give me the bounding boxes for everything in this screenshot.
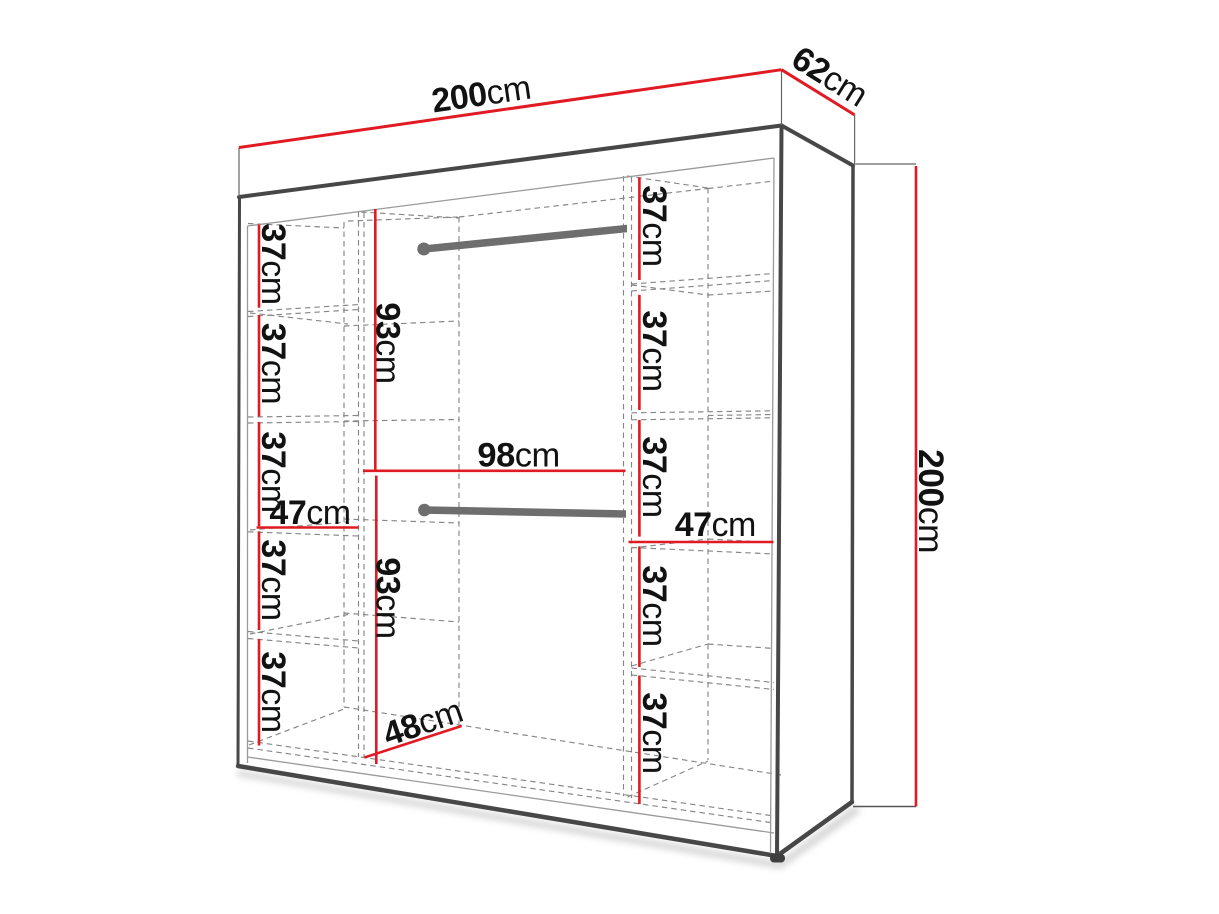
svg-text:98cm: 98cm bbox=[477, 437, 559, 475]
svg-text:200cm: 200cm bbox=[429, 69, 533, 121]
svg-text:200cm: 200cm bbox=[911, 449, 951, 553]
svg-text:37cm: 37cm bbox=[635, 436, 673, 517]
svg-text:37cm: 37cm bbox=[635, 565, 673, 646]
svg-text:93cm: 93cm bbox=[369, 302, 407, 383]
svg-text:93cm: 93cm bbox=[369, 557, 407, 638]
svg-text:37cm: 37cm bbox=[635, 692, 673, 773]
svg-text:37cm: 37cm bbox=[635, 310, 673, 391]
svg-text:37cm: 37cm bbox=[635, 185, 673, 266]
svg-text:47cm: 47cm bbox=[675, 506, 756, 544]
svg-text:62cm: 62cm bbox=[785, 39, 874, 114]
svg-text:37cm: 37cm bbox=[254, 323, 292, 404]
svg-text:37cm: 37cm bbox=[254, 539, 292, 620]
svg-text:37cm: 37cm bbox=[254, 223, 292, 304]
svg-text:48cm: 48cm bbox=[378, 692, 467, 754]
svg-text:37cm: 37cm bbox=[254, 651, 292, 732]
svg-text:47cm: 47cm bbox=[269, 494, 350, 532]
